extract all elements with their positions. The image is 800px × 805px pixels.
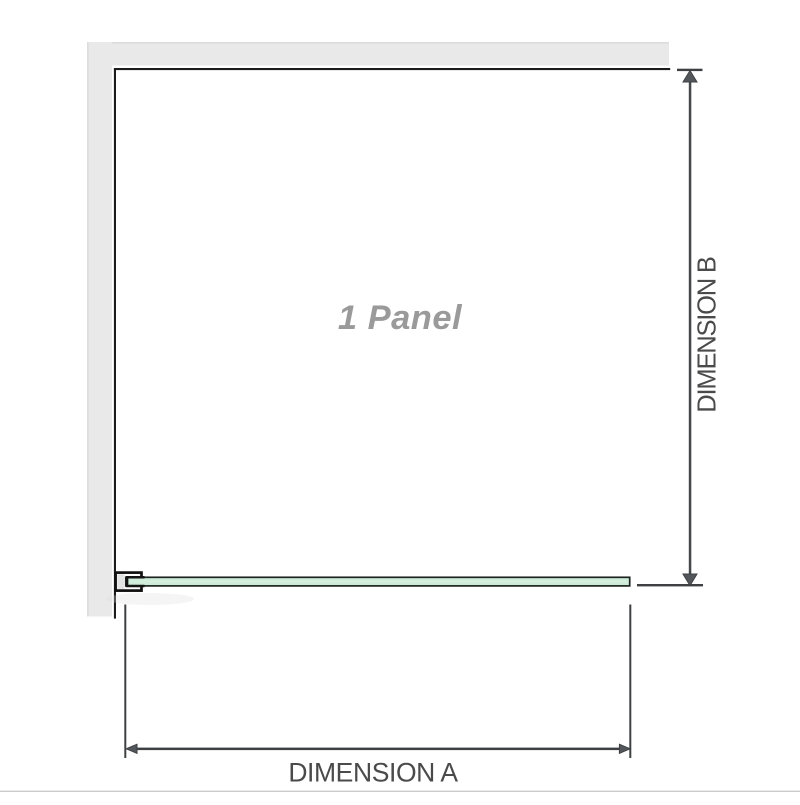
svg-text:1 Panel: 1 Panel <box>338 299 463 337</box>
svg-text:DIMENSION B: DIMENSION B <box>694 257 722 413</box>
svg-text:DIMENSION A: DIMENSION A <box>288 757 458 787</box>
